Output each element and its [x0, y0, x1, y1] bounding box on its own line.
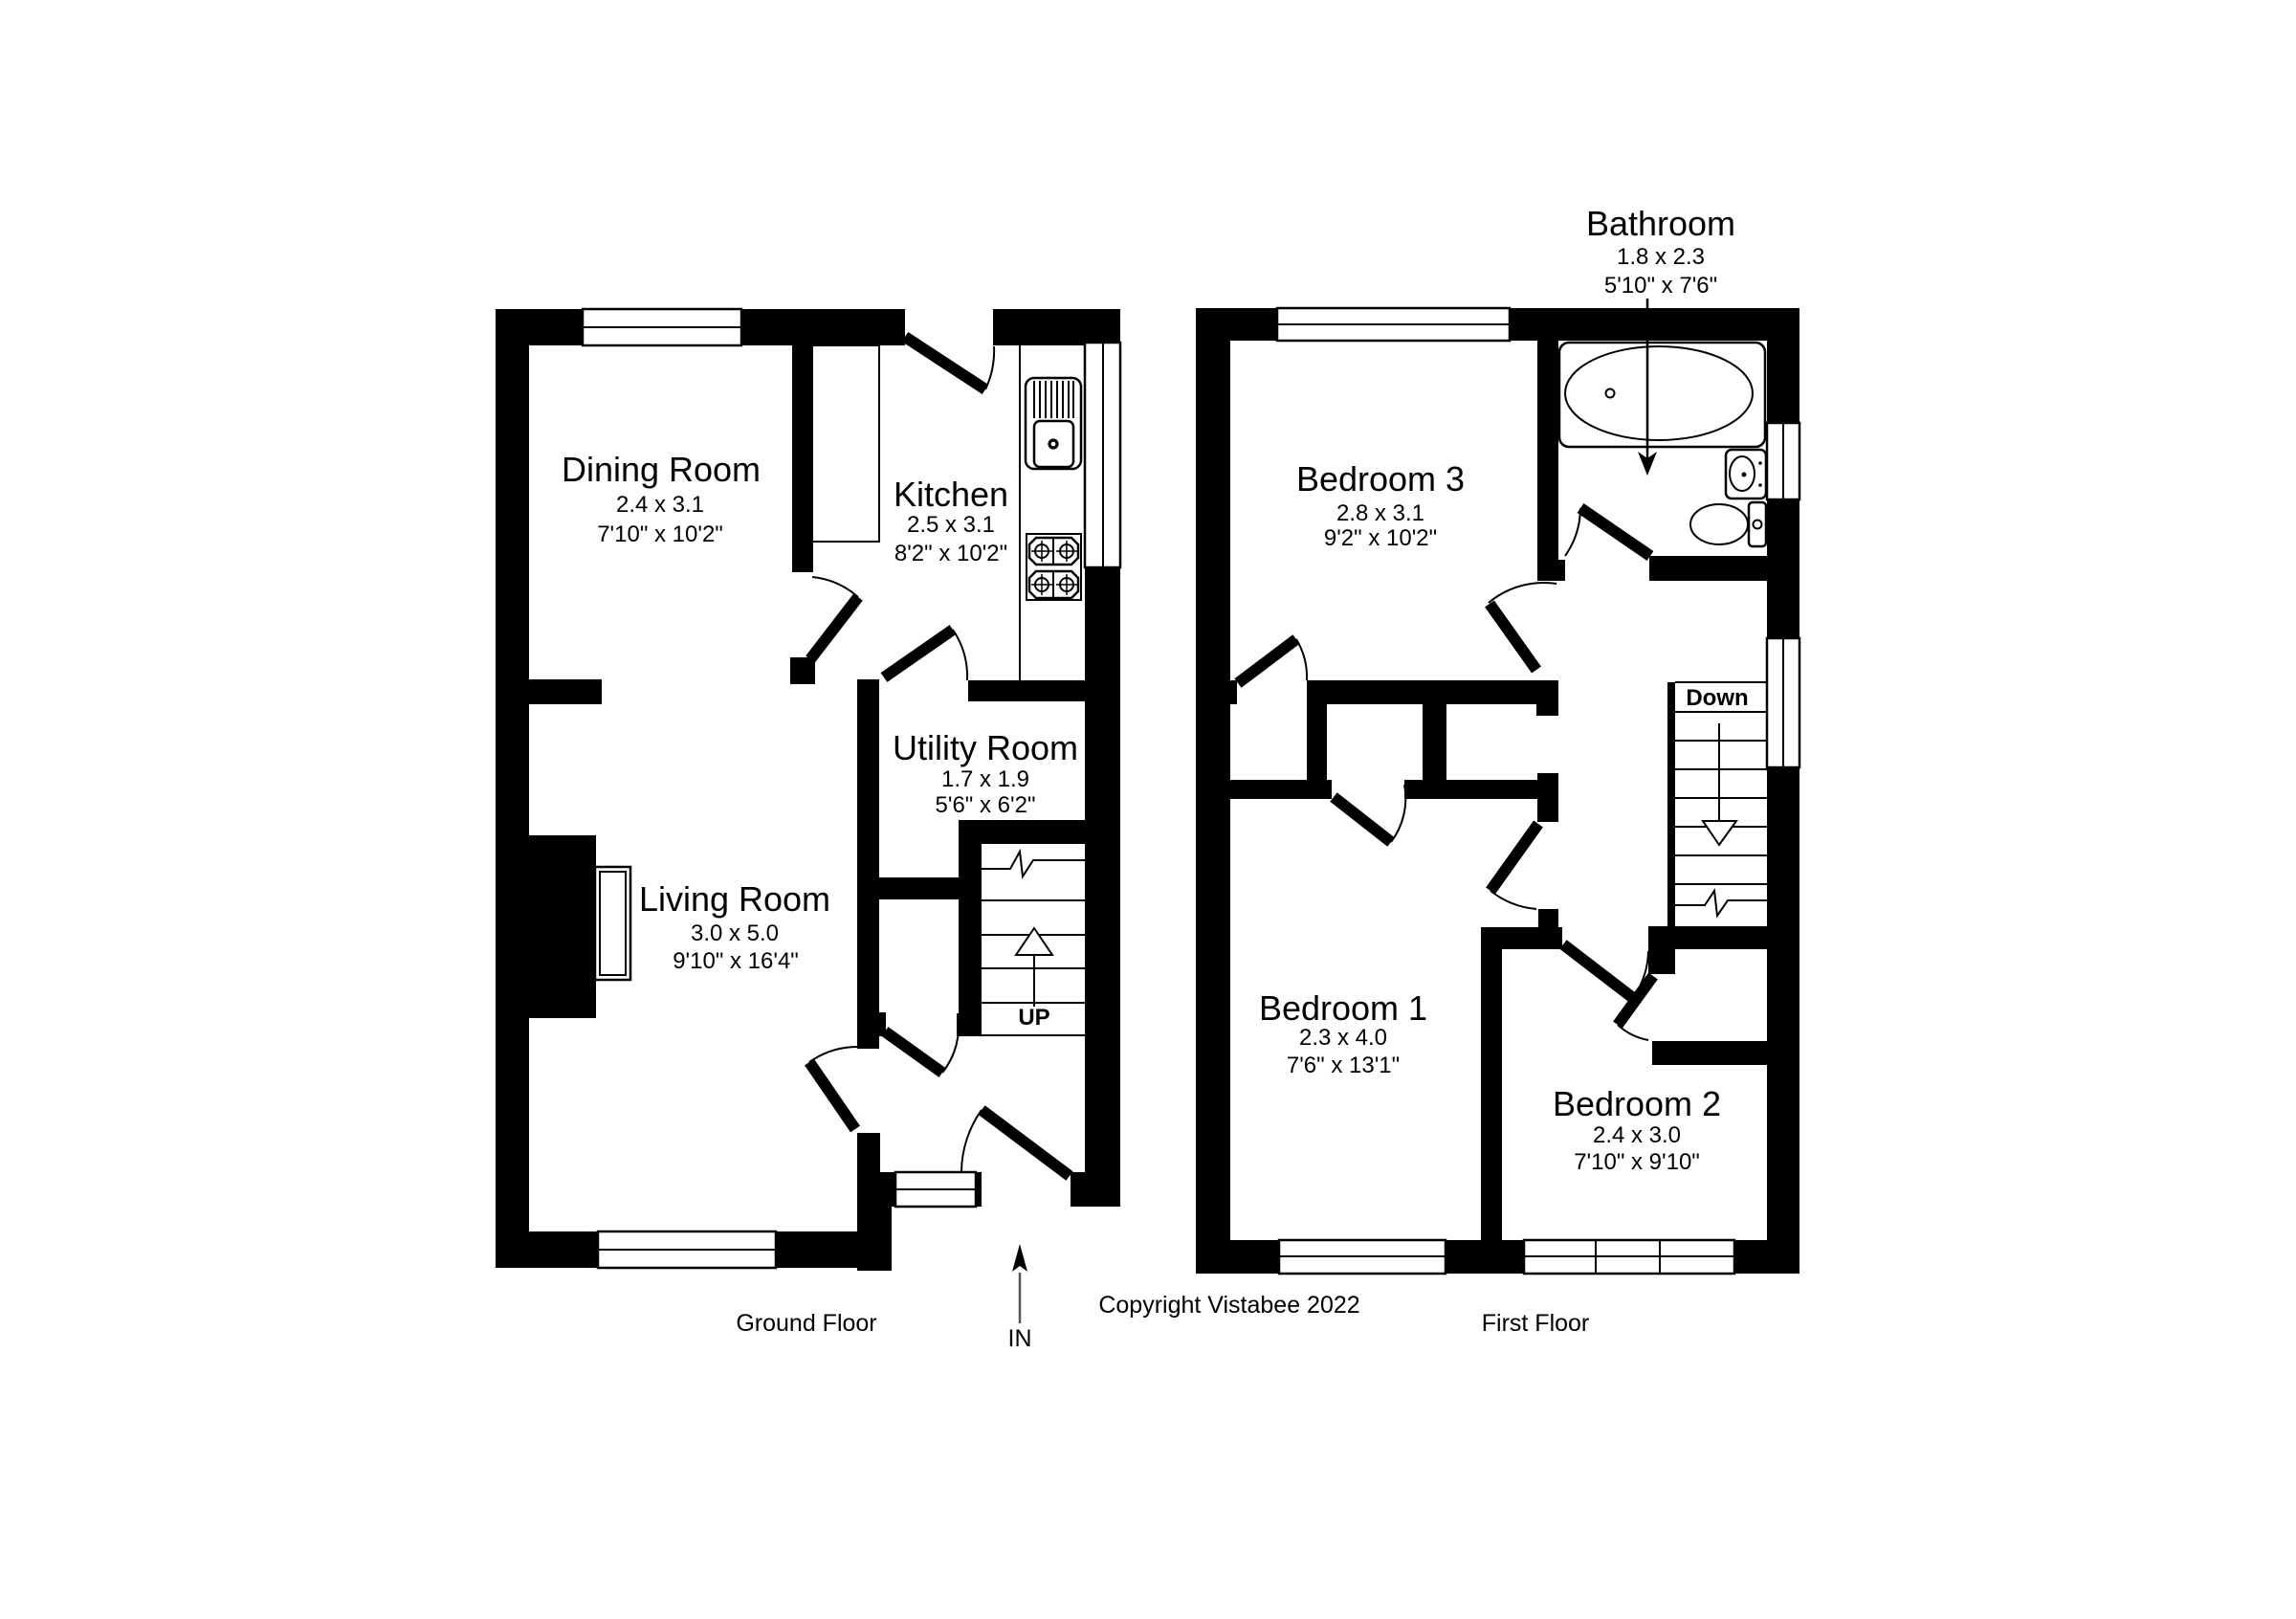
svg-text:Bathroom: Bathroom: [1586, 204, 1735, 243]
svg-text:1.8 x 2.3: 1.8 x 2.3: [1617, 244, 1705, 270]
svg-text:Bedroom 1: Bedroom 1: [1259, 988, 1427, 1028]
svg-text:Copyright Vistabee 2022: Copyright Vistabee 2022: [1098, 1292, 1359, 1319]
svg-text:3.0 x 5.0: 3.0 x 5.0: [691, 920, 779, 946]
svg-text:5'10" x 7'6": 5'10" x 7'6": [1604, 273, 1717, 299]
svg-text:7'10" x 9'10": 7'10" x 9'10": [1574, 1149, 1700, 1175]
svg-text:2.3 x 4.0: 2.3 x 4.0: [1299, 1025, 1387, 1051]
svg-text:7'10" x 10'2": 7'10" x 10'2": [597, 521, 723, 547]
svg-text:8'2" x 10'2": 8'2" x 10'2": [894, 541, 1007, 566]
svg-text:2.8 x 3.1: 2.8 x 3.1: [1336, 500, 1424, 526]
svg-text:Living Room: Living Room: [639, 879, 830, 919]
svg-text:9'2" x 10'2": 9'2" x 10'2": [1324, 525, 1437, 551]
svg-text:Dining Room: Dining Room: [562, 450, 761, 489]
svg-text:2.4 x 3.0: 2.4 x 3.0: [1593, 1122, 1681, 1148]
svg-text:Bedroom 2: Bedroom 2: [1553, 1084, 1721, 1123]
svg-text:7'6" x 13'1": 7'6" x 13'1": [1287, 1053, 1400, 1078]
svg-text:1.7 x 1.9: 1.7 x 1.9: [941, 766, 1029, 792]
svg-text:9'10" x 16'4": 9'10" x 16'4": [673, 948, 799, 974]
svg-text:UP: UP: [1018, 1005, 1049, 1031]
svg-text:First Floor: First Floor: [1482, 1310, 1590, 1337]
svg-text:Ground Floor: Ground Floor: [736, 1310, 876, 1337]
svg-text:2.5 x 3.1: 2.5 x 3.1: [907, 512, 995, 538]
svg-text:IN: IN: [1008, 1325, 1032, 1352]
svg-text:Down: Down: [1686, 685, 1748, 711]
svg-text:Kitchen: Kitchen: [894, 475, 1008, 514]
svg-text:Bedroom 3: Bedroom 3: [1296, 459, 1465, 499]
svg-text:5'6" x 6'2": 5'6" x 6'2": [936, 792, 1036, 818]
svg-text:Utility Room: Utility Room: [893, 728, 1078, 767]
svg-text:2.4 x 3.1: 2.4 x 3.1: [616, 492, 704, 518]
